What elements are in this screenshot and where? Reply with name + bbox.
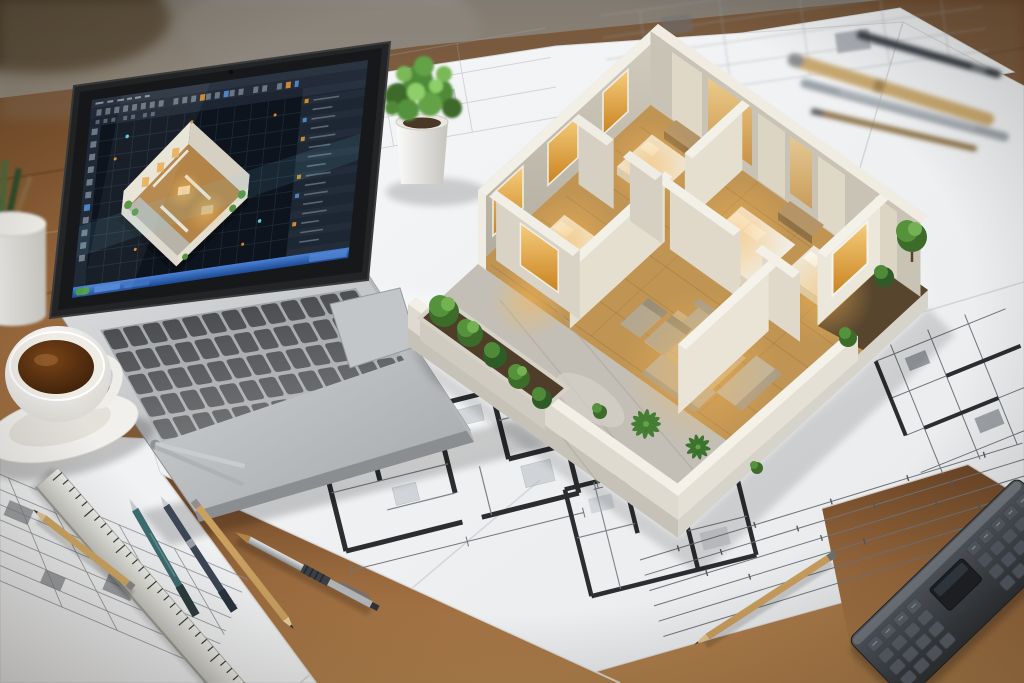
- scene-canvas: [0, 0, 1024, 683]
- vignette: [0, 0, 1024, 683]
- photo-scene: [0, 0, 1024, 683]
